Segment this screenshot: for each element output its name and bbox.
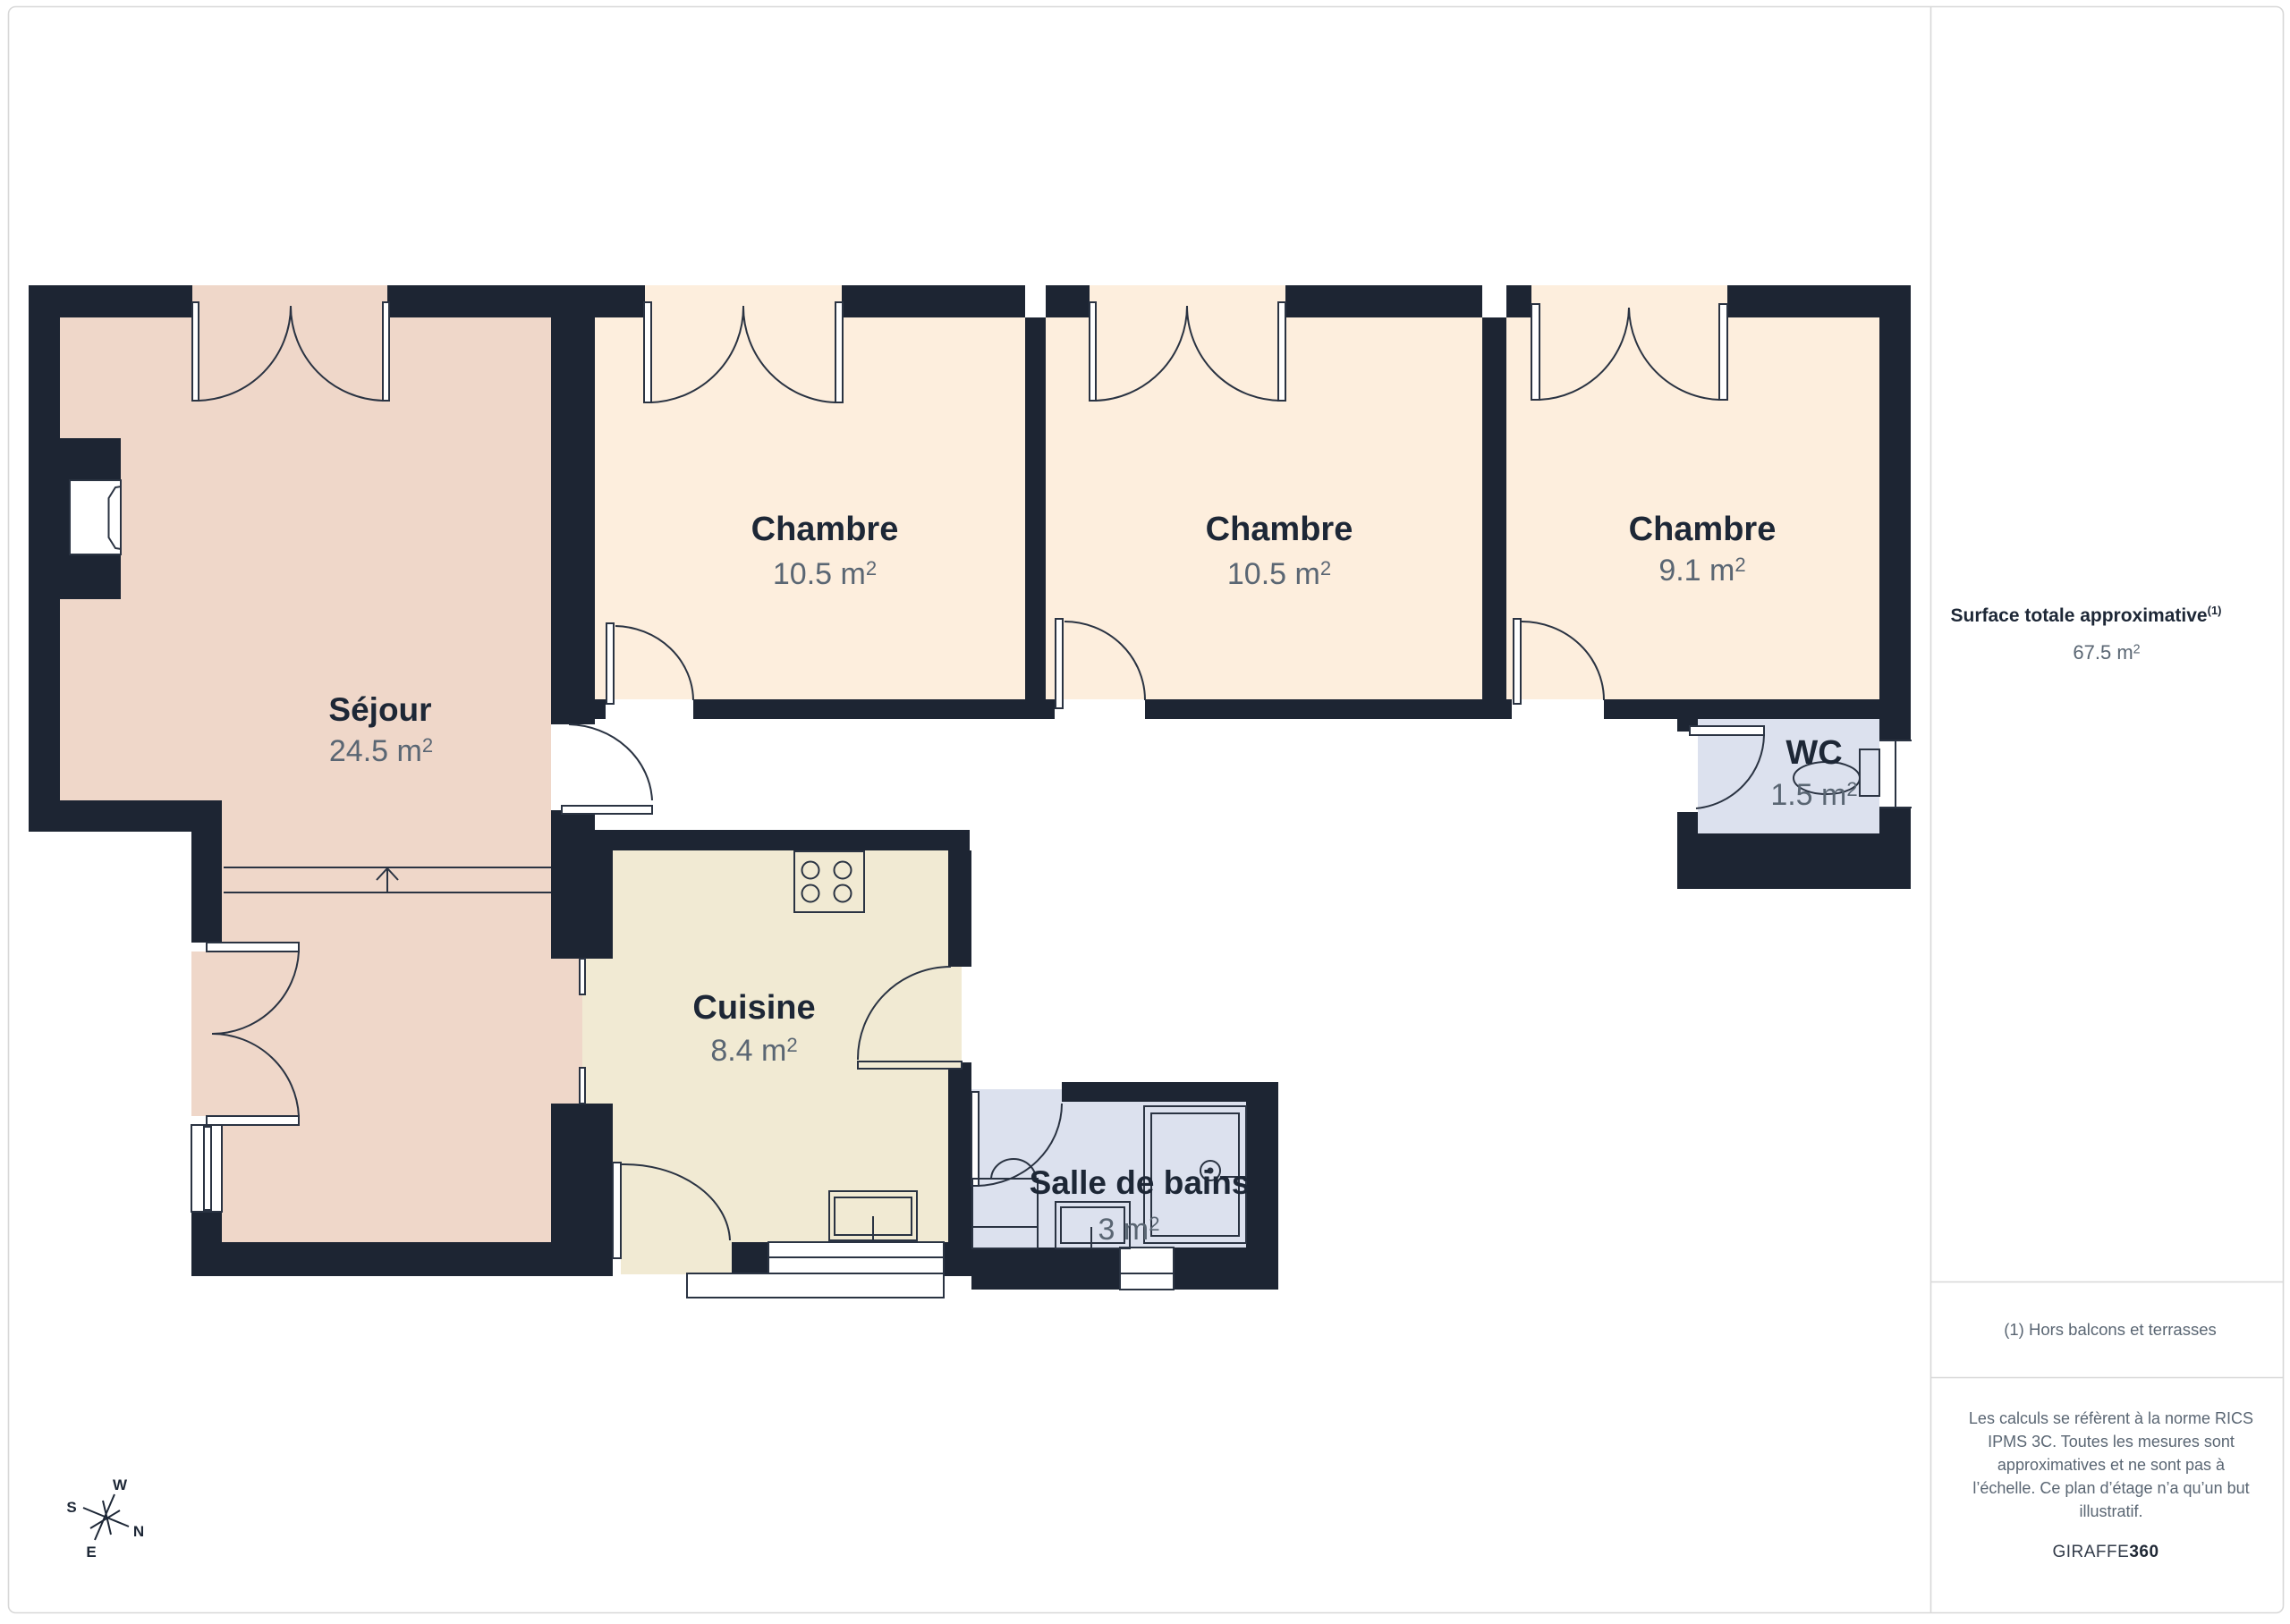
svg-text:8.4 m2: 8.4 m2	[710, 1034, 797, 1068]
svg-text:S: S	[66, 1499, 76, 1516]
svg-text:Chambre: Chambre	[751, 511, 899, 548]
svg-text:24.5 m2: 24.5 m2	[329, 734, 433, 768]
svg-text:Chambre: Chambre	[1629, 511, 1777, 548]
svg-text:approximatives et ne sont pas: approximatives et ne sont pas à	[1997, 1456, 2226, 1474]
svg-text:E: E	[86, 1544, 96, 1561]
svg-text:Cuisine: Cuisine	[692, 989, 815, 1027]
svg-text:10.5 m2: 10.5 m2	[773, 557, 877, 591]
svg-text:l’échelle. Ce plan d’étage n’a: l’échelle. Ce plan d’étage n’a qu’un but	[1972, 1479, 2249, 1497]
svg-text:9.1 m2: 9.1 m2	[1658, 554, 1745, 588]
svg-text:GIRAFFE360: GIRAFFE360	[2052, 1543, 2159, 1561]
svg-text:Séjour: Séjour	[328, 691, 431, 728]
svg-text:Chambre: Chambre	[1206, 511, 1353, 548]
svg-text:W: W	[113, 1476, 128, 1493]
svg-text:10.5 m2: 10.5 m2	[1227, 557, 1331, 591]
svg-text:Salle de bains: Salle de bains	[1030, 1164, 1251, 1201]
svg-text:illustratif.: illustratif.	[2079, 1502, 2142, 1520]
svg-text:Les calculs se réfèrent à la n: Les calculs se réfèrent à la norme RICS	[1969, 1409, 2253, 1427]
svg-text:N: N	[133, 1523, 144, 1540]
svg-text:67.5 m2: 67.5 m2	[2073, 641, 2140, 664]
svg-text:IPMS 3C. Toutes les mesures so: IPMS 3C. Toutes les mesures sont	[1988, 1433, 2235, 1451]
svg-text:Surface totale approximative(1: Surface totale approximative(1)	[1951, 604, 2222, 626]
svg-text:(1) Hors balcons et terrasses: (1) Hors balcons et terrasses	[2004, 1320, 2217, 1339]
svg-text:1.5 m2: 1.5 m2	[1770, 778, 1857, 812]
svg-text:WC: WC	[1785, 734, 1842, 772]
